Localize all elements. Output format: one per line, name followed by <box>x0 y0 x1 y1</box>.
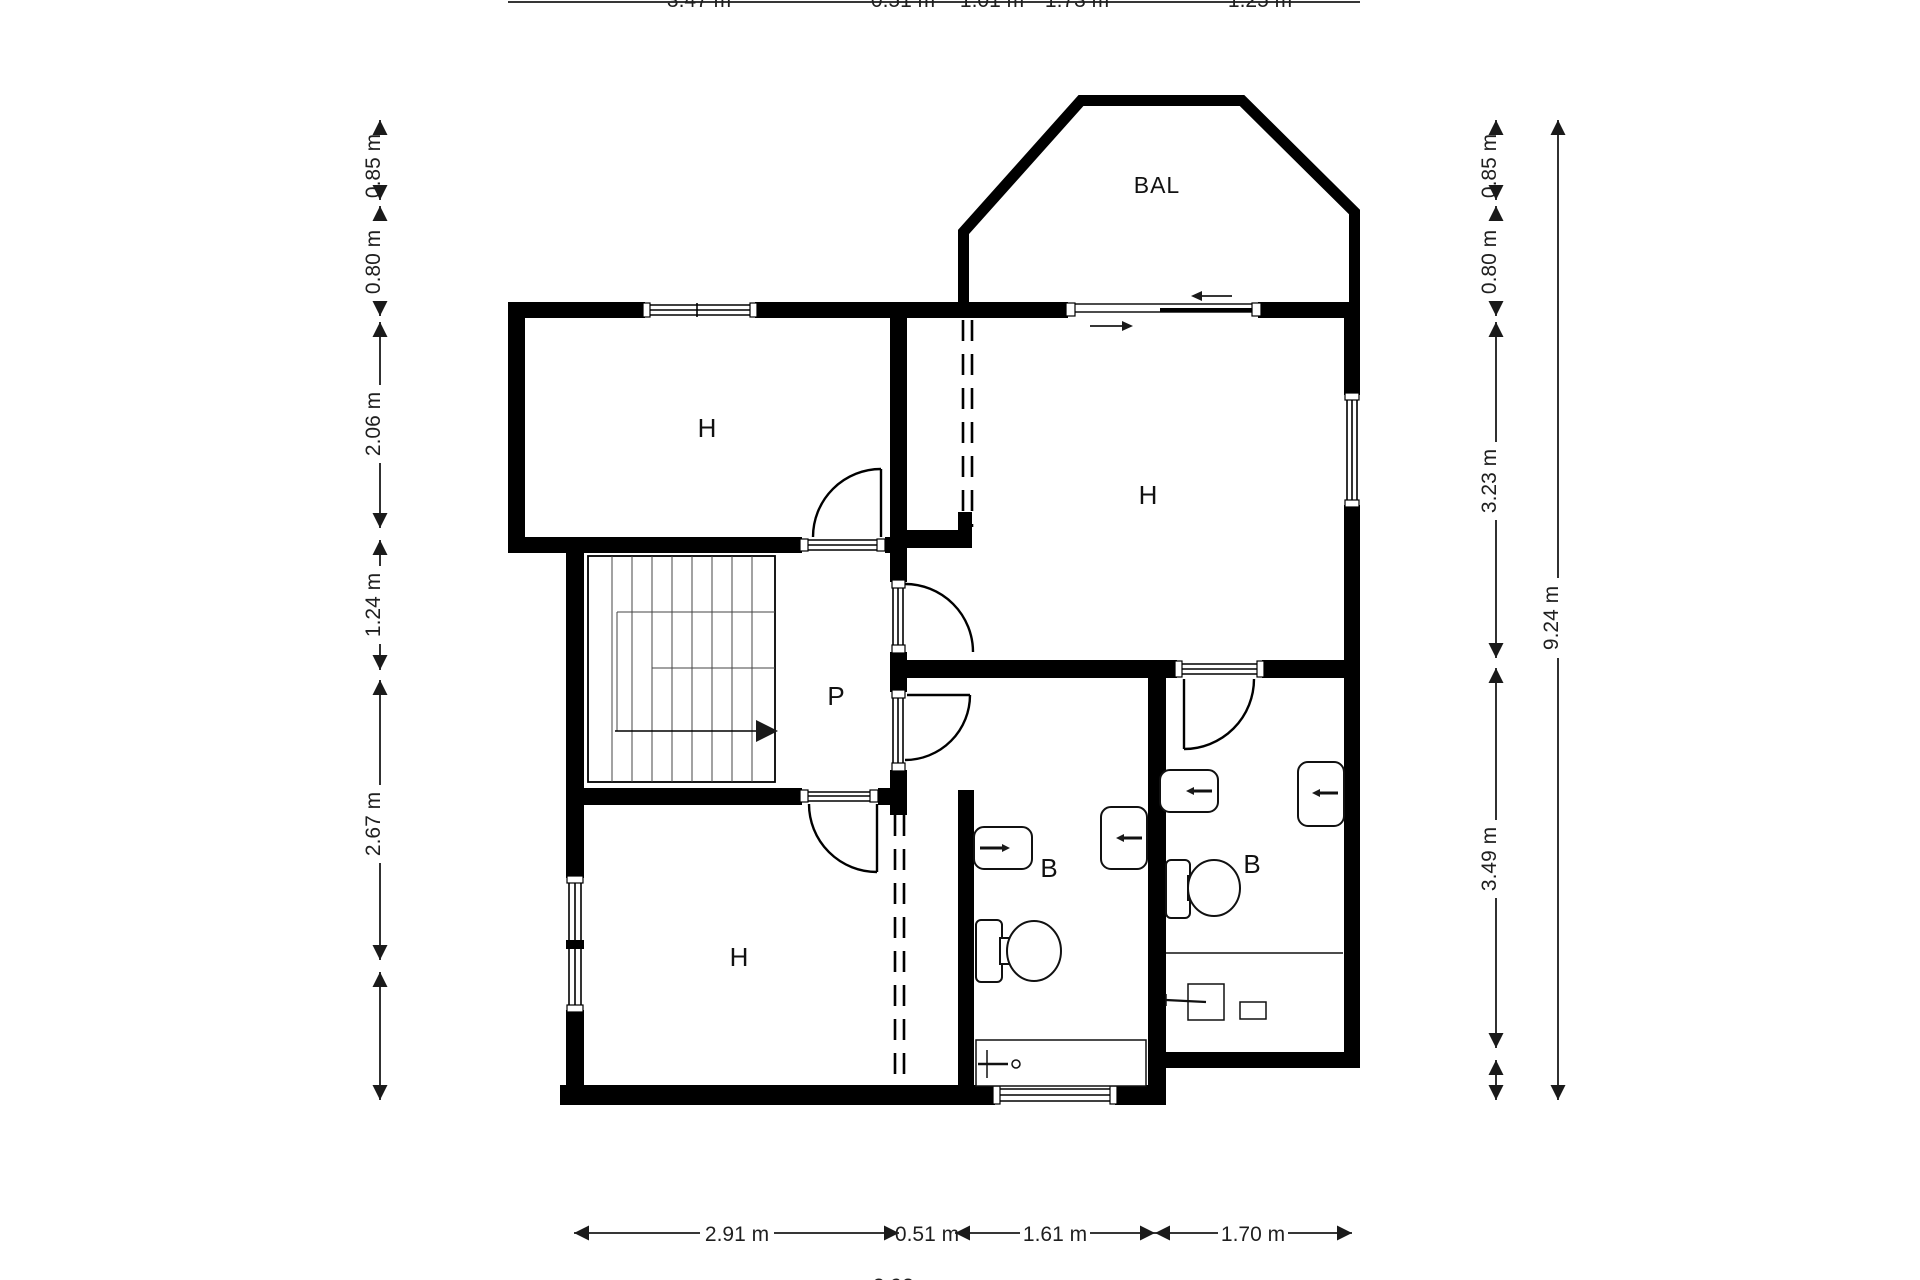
door-swing-icon <box>905 695 970 760</box>
floor-plan-page: H H H P B B BAL 0.85 m 0.80 m 2.06 m 1.2… <box>0 0 1920 1280</box>
dimension-column-right-inner: 0.85 m 0.80 m 3.23 m 3.49 m <box>1478 120 1501 1100</box>
dimension-row-bottom: 2.91 m 0.51 m 1.61 m 1.70 m <box>574 1223 1352 1246</box>
dimension-label: 0.85 m <box>362 134 385 198</box>
room-label-landing: P <box>827 681 844 711</box>
window-icon <box>566 876 584 1012</box>
wall-segment <box>560 1085 995 1105</box>
wall-segment <box>566 537 584 878</box>
dimension-label-partial: 2.92 m <box>873 1275 937 1280</box>
wall-segment <box>1148 1052 1166 1105</box>
dimension-label: 1.24 m <box>362 573 385 637</box>
dimension-column-left: 0.85 m 0.80 m 2.06 m 1.24 m 2.67 m <box>362 120 385 1100</box>
dimension-label: 1.70 m <box>1221 1223 1285 1246</box>
door-threshold <box>890 580 907 653</box>
door-threshold <box>800 788 878 805</box>
sink-icon <box>1160 770 1218 812</box>
room-label-bathroom-center: B <box>1040 853 1057 883</box>
door-swing-icon <box>813 469 881 537</box>
wall-segment <box>1344 505 1360 1068</box>
window-icon <box>993 1085 1117 1105</box>
door-threshold <box>890 690 907 771</box>
room-label-bedroom-right: H <box>1139 480 1158 510</box>
dimension-label-partial: 1.25 m <box>1228 0 1292 12</box>
room-label-bedroom-top-left: H <box>698 413 717 443</box>
balcony-outline <box>964 101 1355 303</box>
wall-segment <box>958 790 974 1105</box>
wall-segment <box>508 537 802 553</box>
sink-icon <box>1298 762 1344 826</box>
wall-segment <box>1344 302 1360 395</box>
slide-arrow-left-icon <box>1191 291 1202 301</box>
dimension-label: 1.61 m <box>1023 1223 1087 1246</box>
dimension-label: 2.67 m <box>362 792 385 856</box>
bathtub-icon <box>976 1040 1146 1086</box>
dimension-label: 0.85 m <box>1478 134 1501 198</box>
dimension-label: 3.49 m <box>1478 827 1501 891</box>
dimension-label: 2.91 m <box>705 1223 769 1246</box>
washing-machine-icon <box>1166 984 1224 1020</box>
room-label-bathroom-right: B <box>1243 849 1260 879</box>
dimension-row-bottom-partial: 2.92 m <box>873 1275 937 1280</box>
dimension-label: 2.06 m <box>362 392 385 456</box>
door-threshold <box>800 537 885 553</box>
slide-arrow-right-icon <box>1122 321 1133 331</box>
door-swing-icon <box>1184 679 1254 749</box>
wall-segment <box>958 512 972 534</box>
dimension-label-partial: 3.47 m <box>667 0 731 12</box>
toilet-icon <box>976 920 1061 982</box>
door-swing-icon <box>809 804 877 872</box>
wall-segment <box>508 302 645 318</box>
walls <box>508 302 1360 1105</box>
wall-segment <box>1148 678 1166 1058</box>
window-icon <box>643 302 757 318</box>
window-icon <box>1175 660 1264 678</box>
dimension-row-top-partial: 3.47 m 0.51 m 1.01 m 1.73 m 1.25 m <box>508 0 1360 12</box>
room-label-balcony: BAL <box>1134 172 1180 198</box>
wall-segment <box>878 788 907 805</box>
floor-plan-canvas: H H H P B B BAL 0.85 m 0.80 m 2.06 m 1.2… <box>0 0 1920 1280</box>
wall-segment <box>755 302 1068 318</box>
wall-segment <box>508 302 525 553</box>
room-label-bedroom-bottom-left: H <box>730 942 749 972</box>
dimension-label-partial: 1.01 m <box>960 0 1024 12</box>
dimension-label-partial: 1.73 m <box>1045 0 1109 12</box>
wall-segment <box>566 788 802 805</box>
sink-icon <box>974 827 1032 869</box>
dimension-label: 0.51 m <box>895 1223 959 1246</box>
toilet-icon <box>1166 860 1240 918</box>
dimension-label: 3.23 m <box>1478 449 1501 513</box>
wall-segment <box>890 660 1177 678</box>
sink-icon <box>1101 807 1147 869</box>
door-swing-icon <box>905 584 973 652</box>
dimension-label: 0.80 m <box>362 230 385 294</box>
window-icon <box>1344 393 1360 507</box>
dimension-column-right-outer: 9.24 m <box>1540 120 1563 1100</box>
dimension-label: 9.24 m <box>1540 586 1563 650</box>
sliding-door-icon <box>1066 291 1261 331</box>
dimension-label: 0.80 m <box>1478 230 1501 294</box>
wall-segment <box>1148 1052 1360 1068</box>
dimension-label-partial: 0.51 m <box>871 0 935 12</box>
drain-box <box>1240 1002 1266 1019</box>
stairs <box>588 556 778 782</box>
